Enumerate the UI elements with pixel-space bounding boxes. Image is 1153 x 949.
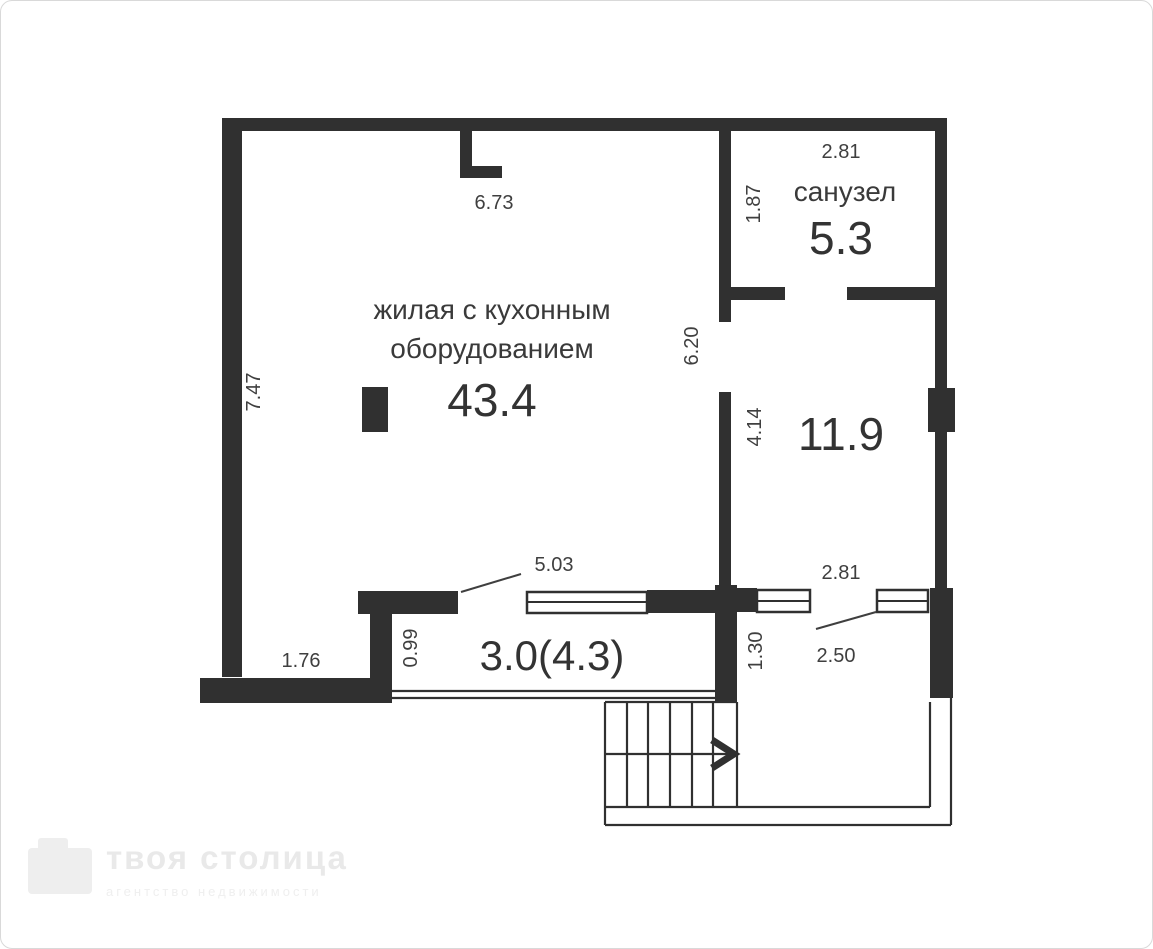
leader-balcony-opening <box>461 574 521 592</box>
dimension-label-divider-lower: 4.14 <box>745 408 765 447</box>
bathroom-area-label: 5.3 <box>809 215 873 261</box>
wall-left <box>222 118 242 677</box>
wall-bathroom-bottom-right <box>847 287 935 300</box>
wall-right-corner <box>930 588 953 698</box>
wall-rightroom-bottom-stub <box>737 588 757 612</box>
floor-plan-drawing <box>0 0 1153 949</box>
wall-top-notch-horizontal <box>460 166 502 178</box>
dimension-label-living-height: 7.47 <box>244 373 264 412</box>
wall-balcony-left <box>370 614 392 684</box>
window-lower-right <box>877 590 928 612</box>
dimension-label-lower-passage: 1.30 <box>746 632 766 671</box>
stairs <box>392 691 951 825</box>
wall-right-pier <box>928 388 955 432</box>
bathroom-name-label: санузел <box>794 178 897 206</box>
wall-right-upper <box>935 118 947 390</box>
dimension-label-divider-upper: 6.20 <box>682 327 702 366</box>
watermark-logo-icon <box>28 838 92 894</box>
dimension-label-bathroom-depth: 1.87 <box>744 185 764 224</box>
wall-living-bottom-mid <box>647 590 715 613</box>
wall-right-mid <box>935 430 947 590</box>
watermark-subtitle: агентство недвижимости <box>106 884 348 899</box>
watermark-title: твоя столица <box>106 838 348 878</box>
floor-plan: 6.73 2.81 1.87 7.47 6.20 4.14 5.03 2.81 … <box>0 0 1153 949</box>
wall-living-bottom-left <box>358 591 458 614</box>
dimension-label-bathroom-width: 2.81 <box>822 142 861 162</box>
dimension-label-lower-opening: 2.50 <box>817 646 856 666</box>
window-balcony <box>527 592 647 613</box>
dimension-label-balcony-opening: 5.03 <box>535 555 574 575</box>
living-room-name-line2: оборудованием <box>390 335 593 363</box>
leader-lower-opening <box>816 612 876 629</box>
kitchen-pier <box>362 387 388 432</box>
wall-bottom-protrusion <box>200 678 392 703</box>
living-room-area-label: 43.4 <box>447 377 537 423</box>
dimension-label-top-width: 6.73 <box>475 193 514 213</box>
balcony-area-label: 3.0(4.3) <box>480 635 625 677</box>
window-lower-left <box>757 590 810 612</box>
dimension-label-lower-width: 2.81 <box>822 563 861 583</box>
dimension-label-balcony-depth: 0.99 <box>401 629 421 668</box>
living-room-name-line1: жилая с кухонным <box>373 296 610 324</box>
wall-divider-upper <box>719 131 731 322</box>
wall-bathroom-bottom-left <box>731 287 785 300</box>
dimension-label-balcony-left: 1.76 <box>282 651 321 671</box>
wall-top <box>222 118 947 131</box>
wall-divider-bottom-column <box>715 585 737 703</box>
wall-divider-lower <box>719 392 731 590</box>
right-room-area-label: 11.9 <box>798 411 884 457</box>
watermark: твоя столица агентство недвижимости <box>28 838 348 899</box>
